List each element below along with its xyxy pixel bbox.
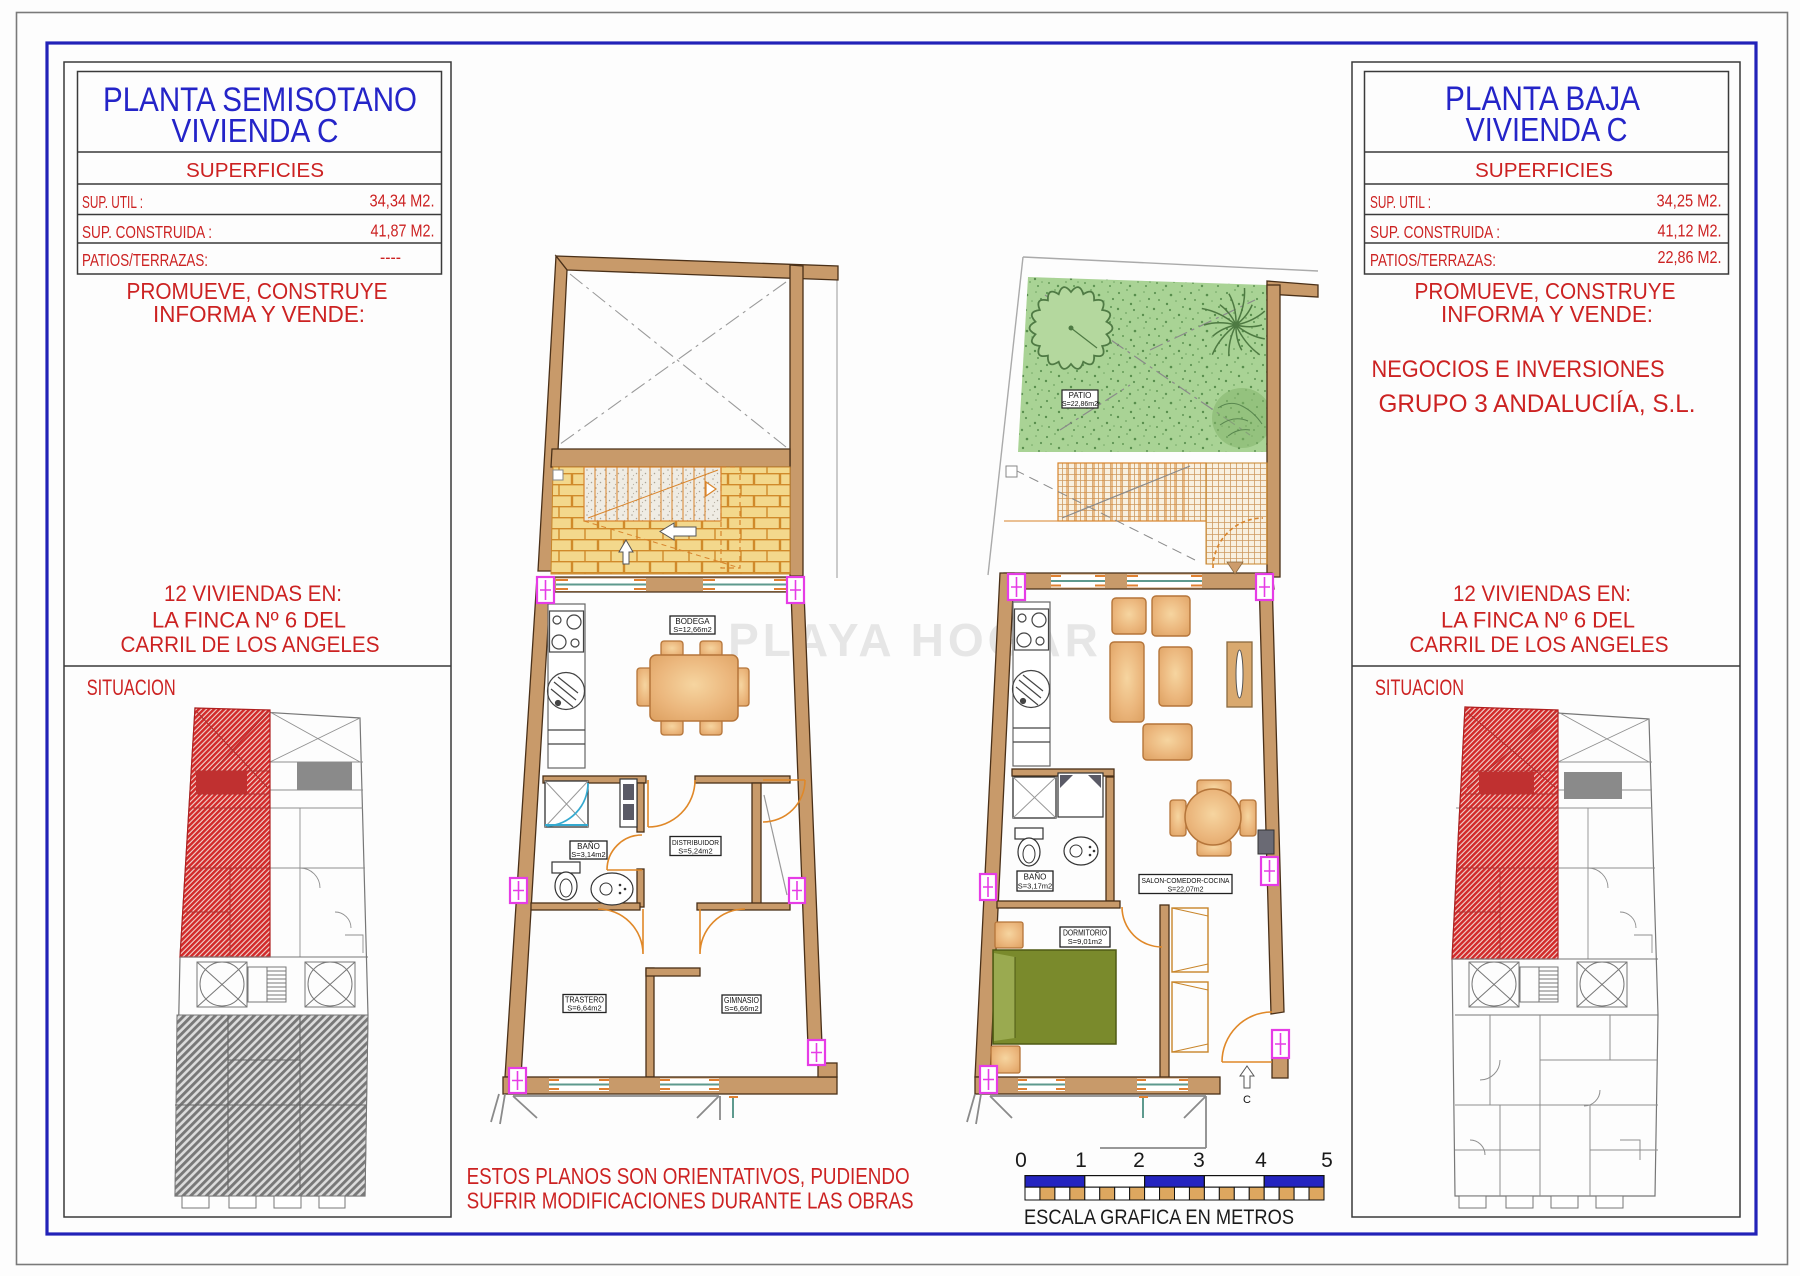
svg-text:INFORMA Y VENDE:: INFORMA Y VENDE: <box>1441 301 1653 327</box>
svg-text:S=3,17m2: S=3,17m2 <box>1018 882 1052 891</box>
svg-text:CARRIL DE LOS ANGELES: CARRIL DE LOS ANGELES <box>121 632 380 657</box>
svg-text:CARRIL DE LOS ANGELES: CARRIL DE LOS ANGELES <box>1410 632 1669 657</box>
svg-text:VIVIENDA C: VIVIENDA C <box>172 112 339 149</box>
svg-text:PATIOS/TERRAZAS:: PATIOS/TERRAZAS: <box>82 250 208 270</box>
svg-text:LA FINCA Nº 6 DEL: LA FINCA Nº 6 DEL <box>152 608 346 633</box>
svg-text:S=9,01m2: S=9,01m2 <box>1068 937 1102 946</box>
svg-text:34,34 M2.: 34,34 M2. <box>370 191 435 211</box>
svg-text:3: 3 <box>1193 1149 1205 1172</box>
svg-text:SUP. UTIL :: SUP. UTIL : <box>82 192 143 212</box>
svg-text:4: 4 <box>1255 1149 1267 1172</box>
svg-text:NEGOCIOS E INVERSIONES: NEGOCIOS E INVERSIONES <box>1372 356 1665 383</box>
svg-text:S=5,24m2: S=5,24m2 <box>678 847 712 856</box>
svg-text:12 VIVIENDAS EN:: 12 VIVIENDAS EN: <box>164 581 342 606</box>
svg-text:SALON-COMEDOR-COCINA: SALON-COMEDOR-COCINA <box>1142 876 1230 885</box>
svg-text:41,12 M2.: 41,12 M2. <box>1658 221 1722 241</box>
svg-text:5: 5 <box>1321 1149 1333 1172</box>
svg-text:41,87 M2.: 41,87 M2. <box>371 221 435 241</box>
svg-text:SITUACION: SITUACION <box>1375 675 1464 700</box>
svg-text:SUP. CONSTRUIDA :: SUP. CONSTRUIDA : <box>1370 222 1500 242</box>
svg-text:S=22,07m2: S=22,07m2 <box>1168 887 1204 894</box>
svg-text:PATIO: PATIO <box>1069 391 1092 400</box>
svg-text:2: 2 <box>1133 1149 1145 1172</box>
svg-text:SUPERFICIES: SUPERFICIES <box>186 160 324 182</box>
svg-text:SUPERFICIES: SUPERFICIES <box>1475 160 1613 182</box>
svg-text:----: ---- <box>380 247 401 267</box>
svg-text:GRUPO 3 ANDALUCIÍA, S.L.: GRUPO 3 ANDALUCIÍA, S.L. <box>1379 389 1696 418</box>
svg-text:ESTOS PLANOS SON ORIENTATIVOS,: ESTOS PLANOS SON ORIENTATIVOS, PUDIENDO <box>467 1163 910 1189</box>
svg-text:PATIOS/TERRAZAS:: PATIOS/TERRAZAS: <box>1370 250 1496 270</box>
svg-text:S=22,86m2: S=22,86m2 <box>1062 401 1098 408</box>
svg-text:12 VIVIENDAS EN:: 12 VIVIENDAS EN: <box>1453 581 1631 606</box>
svg-text:VIVIENDA C: VIVIENDA C <box>1466 111 1628 148</box>
svg-text:SUP. CONSTRUIDA :: SUP. CONSTRUIDA : <box>82 222 212 242</box>
svg-text:LA FINCA Nº 6 DEL: LA FINCA Nº 6 DEL <box>1441 608 1635 633</box>
svg-text:S=6,64m2: S=6,64m2 <box>567 1004 601 1013</box>
svg-text:BAÑO: BAÑO <box>1024 873 1047 882</box>
svg-text:S=6,66m2: S=6,66m2 <box>724 1004 758 1013</box>
svg-text:ESCALA GRAFICA EN METROS: ESCALA GRAFICA EN METROS <box>1024 1206 1294 1229</box>
svg-text:C: C <box>1243 1094 1251 1106</box>
svg-text:SITUACION: SITUACION <box>87 675 176 700</box>
svg-text:INFORMA Y VENDE:: INFORMA Y VENDE: <box>153 301 365 327</box>
svg-text:34,25 M2.: 34,25 M2. <box>1657 191 1722 211</box>
svg-text:SUP. UTIL :: SUP. UTIL : <box>1370 192 1431 212</box>
svg-text:SUFRIR MODIFICACIONES DURANTE: SUFRIR MODIFICACIONES DURANTE LAS OBRAS <box>467 1188 914 1214</box>
svg-text:22,86 M2.: 22,86 M2. <box>1658 247 1722 267</box>
svg-text:0: 0 <box>1015 1149 1027 1172</box>
svg-text:S=12,66m2: S=12,66m2 <box>673 625 712 634</box>
svg-text:S=3,14m2: S=3,14m2 <box>571 850 605 859</box>
svg-text:1: 1 <box>1075 1149 1087 1172</box>
